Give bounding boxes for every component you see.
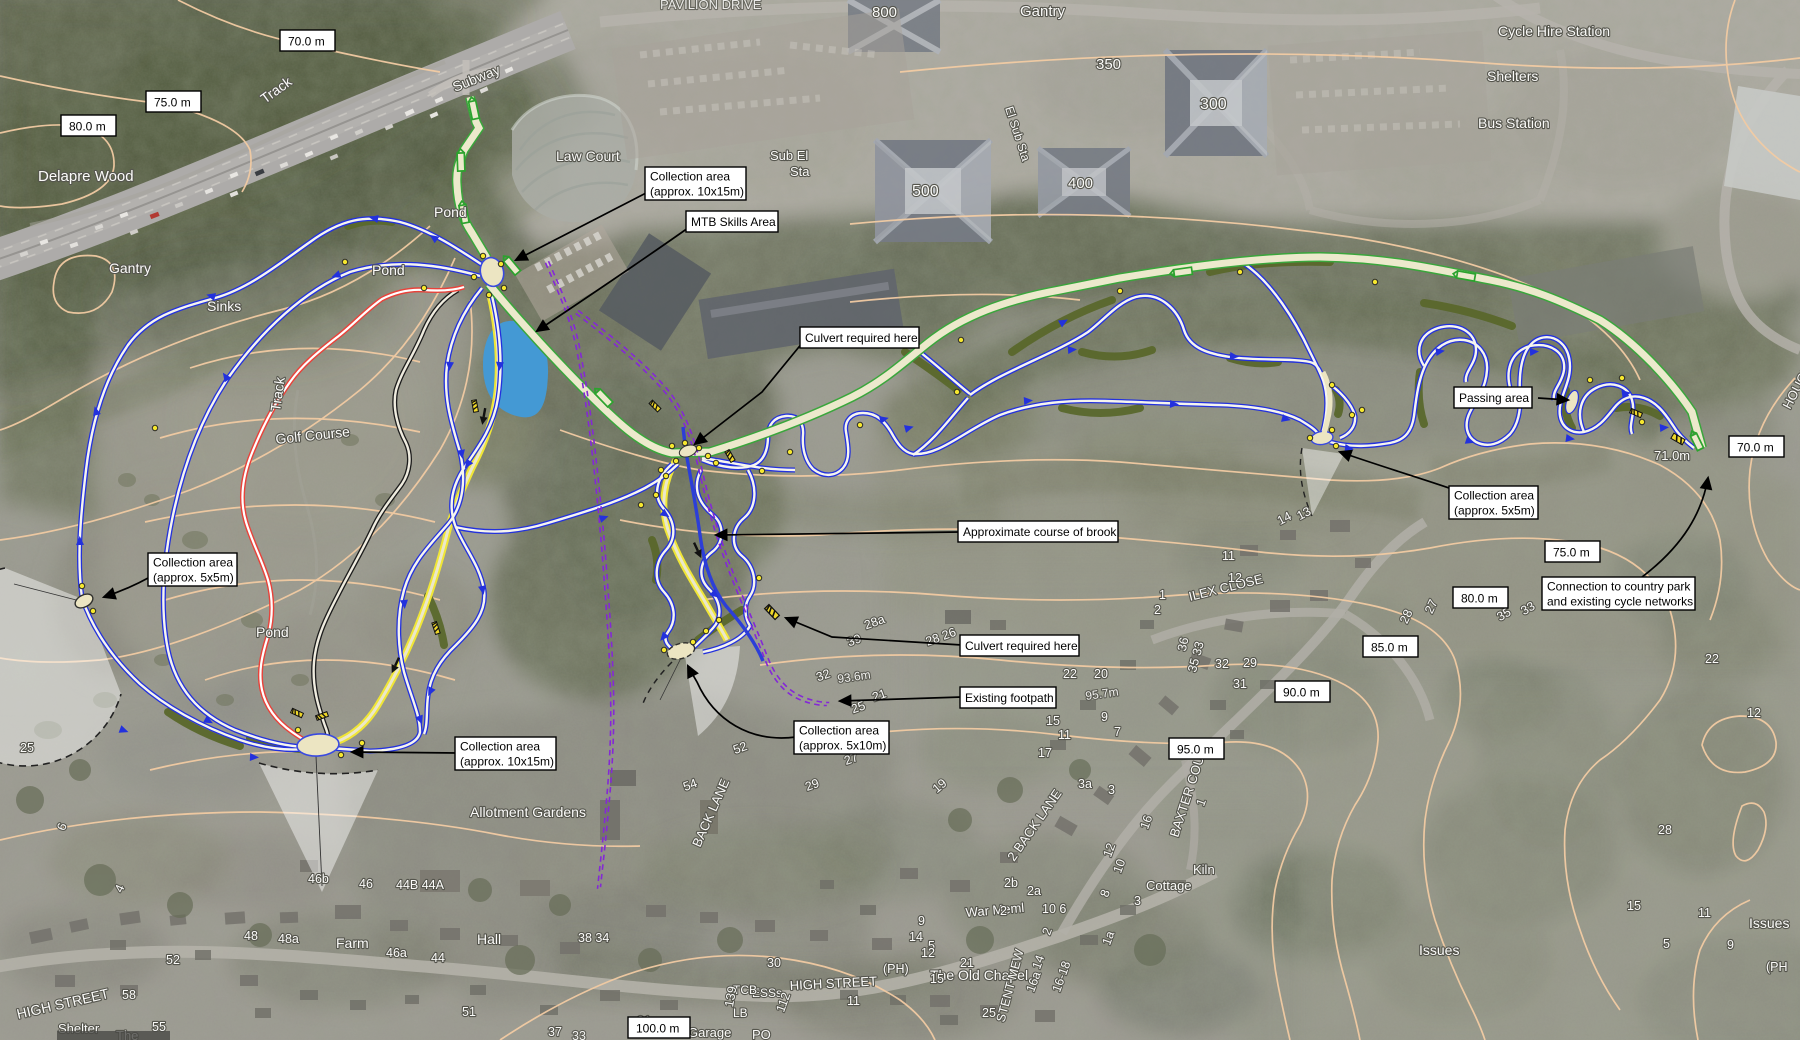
svg-text:Shelters: Shelters: [1487, 68, 1538, 84]
svg-text:PO: PO: [752, 1027, 771, 1040]
svg-text:29: 29: [1243, 656, 1257, 670]
svg-text:90.0 m: 90.0 m: [1283, 686, 1320, 700]
svg-text:11: 11: [1058, 728, 1071, 742]
svg-text:51: 51: [462, 1005, 476, 1019]
svg-text:Cottage: Cottage: [1146, 878, 1192, 893]
svg-text:75.0 m: 75.0 m: [1553, 546, 1590, 560]
svg-text:Allotment Gardens: Allotment Gardens: [470, 804, 586, 820]
svg-text:(approx. 5x5m): (approx. 5x5m): [1454, 504, 1535, 518]
svg-text:3a: 3a: [1078, 777, 1092, 791]
svg-text:12: 12: [1228, 571, 1242, 585]
svg-text:9: 9: [1727, 938, 1734, 952]
svg-text:400: 400: [1068, 175, 1093, 192]
svg-text:32: 32: [1215, 657, 1229, 671]
svg-text:2: 2: [1154, 603, 1161, 617]
svg-text:21: 21: [960, 956, 974, 970]
svg-text:37: 37: [548, 1025, 562, 1039]
svg-text:Sinks: Sinks: [207, 298, 241, 314]
svg-text:15: 15: [1627, 899, 1641, 913]
svg-text:44: 44: [431, 951, 445, 965]
svg-text:500: 500: [912, 183, 939, 200]
svg-text:3: 3: [1134, 894, 1141, 908]
svg-text:14: 14: [909, 930, 923, 944]
svg-text:1: 1: [1159, 588, 1166, 602]
svg-text:31: 31: [1233, 677, 1247, 691]
svg-text:12: 12: [921, 946, 935, 960]
svg-text:17: 17: [1038, 746, 1052, 760]
svg-text:36: 36: [1175, 636, 1192, 653]
svg-text:71.0m: 71.0m: [1654, 448, 1690, 463]
svg-text:95.0 m: 95.0 m: [1177, 743, 1214, 757]
svg-text:Law Court: Law Court: [556, 148, 620, 164]
svg-text:100.0 m: 100.0 m: [636, 1022, 679, 1036]
svg-text:Garage: Garage: [688, 1025, 731, 1040]
svg-text:15: 15: [1046, 714, 1060, 728]
svg-text:300: 300: [1200, 96, 1227, 113]
svg-text:46a: 46a: [386, 946, 407, 960]
svg-text:9: 9: [918, 914, 925, 928]
svg-text:Hall: Hall: [477, 931, 501, 947]
svg-text:46: 46: [359, 877, 373, 891]
svg-text:Connection to country park: Connection to country park: [1547, 580, 1691, 594]
svg-text:30: 30: [767, 956, 781, 970]
svg-text:Collection area: Collection area: [1454, 489, 1534, 503]
svg-text:Issues: Issues: [1419, 942, 1459, 958]
svg-text:(PH: (PH: [1766, 960, 1788, 974]
svg-text:22: 22: [1705, 652, 1719, 666]
svg-text:11: 11: [1222, 549, 1235, 563]
svg-text:Collection area: Collection area: [153, 556, 233, 570]
svg-text:38 34: 38 34: [578, 931, 609, 945]
svg-text:52: 52: [166, 953, 180, 967]
svg-text:PAVILION DRIVE: PAVILION DRIVE: [660, 0, 762, 12]
svg-text:80.0 m: 80.0 m: [69, 120, 106, 134]
svg-text:70.0 m: 70.0 m: [288, 35, 325, 49]
svg-text:Sta: Sta: [790, 164, 810, 179]
svg-text:33: 33: [572, 1029, 586, 1040]
svg-text:Kiln: Kiln: [1193, 862, 1215, 877]
svg-text:7: 7: [1114, 725, 1121, 739]
svg-text:3: 3: [1108, 783, 1115, 797]
svg-text:Passing area: Passing area: [1459, 391, 1529, 405]
svg-text:(approx. 10x15m): (approx. 10x15m): [460, 755, 554, 769]
svg-text:9: 9: [1101, 710, 1108, 724]
svg-text:Pond: Pond: [434, 204, 467, 220]
svg-text:MTB Skills Area: MTB Skills Area: [691, 215, 776, 229]
svg-text:350: 350: [1096, 56, 1121, 73]
svg-text:28: 28: [1658, 823, 1672, 837]
svg-text:Collection area: Collection area: [799, 724, 879, 738]
svg-text:12: 12: [1747, 706, 1761, 720]
svg-text:20: 20: [1094, 667, 1108, 681]
svg-text:Sub El: Sub El: [770, 148, 808, 163]
svg-text:15: 15: [930, 972, 944, 986]
svg-text:Cycle Hire Station: Cycle Hire Station: [1498, 23, 1610, 39]
svg-text:800: 800: [872, 4, 897, 21]
svg-text:Pond: Pond: [256, 624, 289, 640]
svg-text:Pond: Pond: [372, 262, 405, 278]
svg-text:Culvert required here: Culvert required here: [965, 639, 1078, 653]
svg-text:Gantry: Gantry: [109, 260, 151, 276]
svg-text:11: 11: [847, 994, 860, 1008]
svg-text:22: 22: [1063, 667, 1077, 681]
svg-text:(approx. 5x5m): (approx. 5x5m): [153, 571, 234, 585]
svg-text:2: 2: [1000, 904, 1007, 918]
svg-text:44B 44A: 44B 44A: [396, 878, 445, 892]
svg-text:Issues: Issues: [1749, 915, 1789, 931]
svg-text:and existing cycle networks: and existing cycle networks: [1547, 595, 1693, 609]
svg-text:11: 11: [1698, 906, 1711, 920]
svg-text:(approx. 5x10m): (approx. 5x10m): [799, 739, 886, 753]
svg-text:(PH): (PH): [883, 962, 909, 976]
svg-text:80.0 m: 80.0 m: [1461, 592, 1498, 606]
svg-text:48: 48: [244, 929, 258, 943]
svg-text:25: 25: [20, 741, 34, 755]
svg-text:10 6: 10 6: [1042, 902, 1066, 916]
svg-text:Approximate course of brook: Approximate course of brook: [963, 525, 1117, 539]
svg-text:58: 58: [122, 988, 136, 1002]
svg-text:Existing footpath: Existing footpath: [965, 691, 1054, 705]
svg-text:2a: 2a: [1027, 884, 1041, 898]
svg-text:Collection area: Collection area: [650, 170, 730, 184]
svg-text:Gantry: Gantry: [1020, 3, 1066, 20]
svg-text:85.0 m: 85.0 m: [1371, 641, 1408, 655]
svg-text:2b: 2b: [1004, 876, 1018, 890]
svg-text:Bus Station: Bus Station: [1478, 115, 1550, 131]
svg-text:46b: 46b: [308, 872, 329, 886]
svg-text:75.0 m: 75.0 m: [154, 96, 191, 110]
svg-text:(approx. 10x15m): (approx. 10x15m): [650, 185, 744, 199]
svg-text:70.0 m: 70.0 m: [1737, 441, 1774, 455]
svg-text:Delapre Wood: Delapre Wood: [38, 168, 134, 185]
svg-text:Farm: Farm: [336, 935, 369, 951]
svg-text:Culvert required here: Culvert required here: [805, 331, 918, 345]
svg-text:5: 5: [1663, 937, 1670, 951]
svg-text:Collection area: Collection area: [460, 740, 540, 754]
svg-text:48a: 48a: [278, 932, 299, 946]
